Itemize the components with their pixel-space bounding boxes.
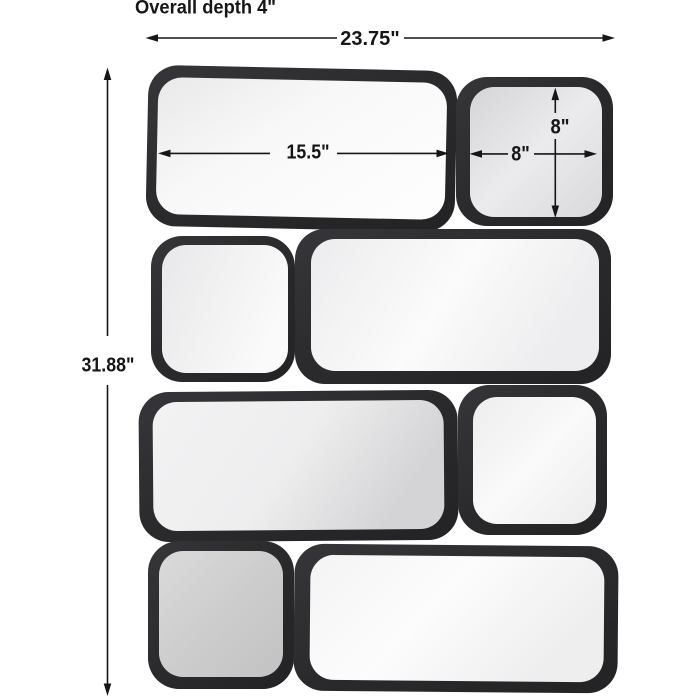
svg-text:23.75": 23.75" xyxy=(340,28,400,50)
svg-text:31.88": 31.88" xyxy=(82,355,135,377)
svg-text:8": 8" xyxy=(511,143,530,166)
svg-text:Overall depth 4": Overall depth 4" xyxy=(135,0,276,19)
svg-text:15.5": 15.5" xyxy=(287,142,330,164)
svg-text:8": 8" xyxy=(551,116,570,139)
